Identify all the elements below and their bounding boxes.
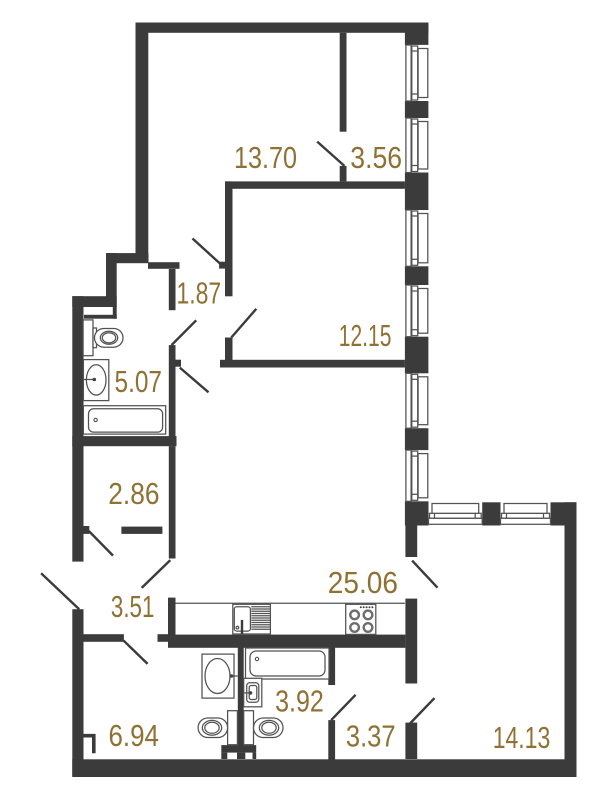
svg-text:12.15: 12.15 [339,319,392,353]
svg-text:3.51: 3.51 [111,590,154,624]
svg-text:1.87: 1.87 [177,277,222,311]
svg-text:3.56: 3.56 [350,141,402,175]
svg-text:25.06: 25.06 [328,566,398,600]
svg-text:2.86: 2.86 [108,477,159,511]
svg-text:13.70: 13.70 [234,141,297,175]
svg-text:6.94: 6.94 [109,719,160,753]
svg-text:3.92: 3.92 [275,685,324,719]
svg-text:14.13: 14.13 [493,721,551,755]
svg-text:5.07: 5.07 [115,365,163,399]
svg-text:3.37: 3.37 [346,720,396,754]
